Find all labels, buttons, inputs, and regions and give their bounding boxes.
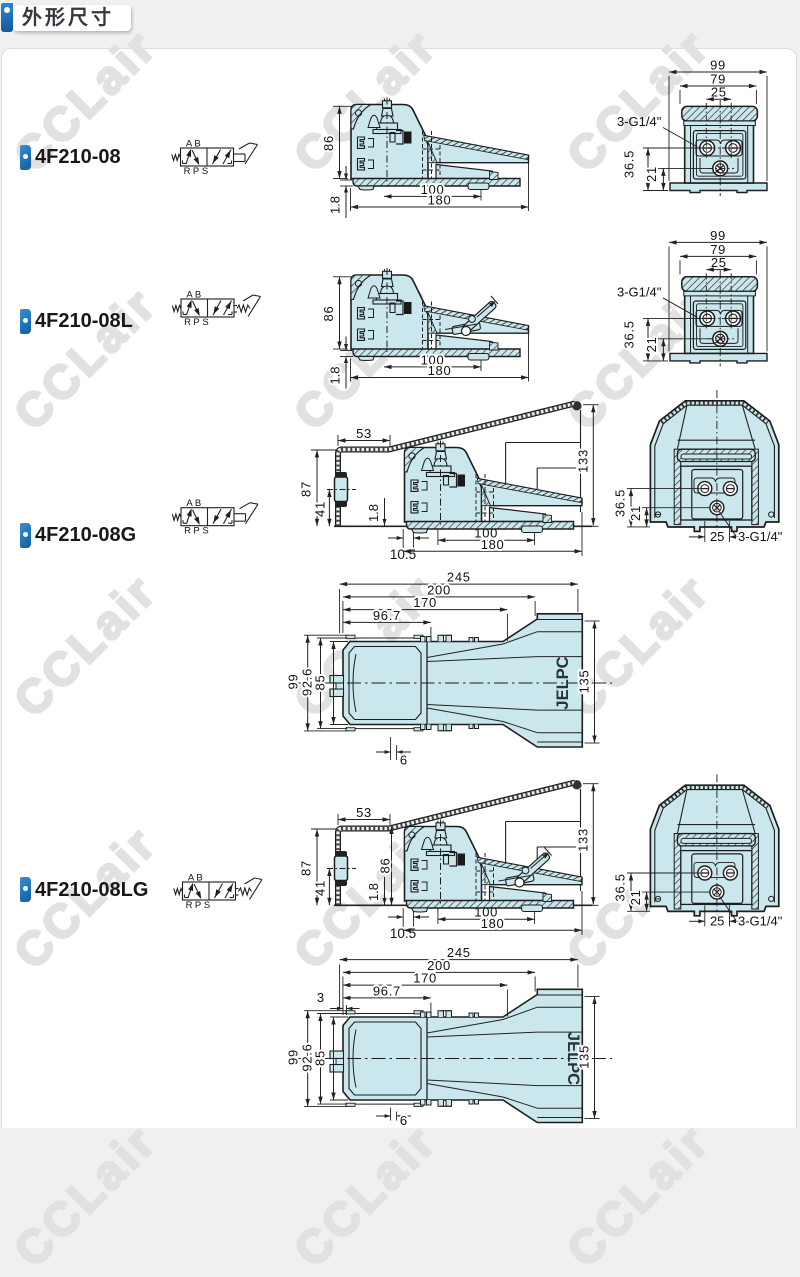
svg-text:A: A (186, 498, 193, 509)
svg-text:P: P (193, 526, 199, 537)
svg-text:R: R (184, 526, 191, 537)
svg-text:10.5: 10.5 (390, 926, 416, 941)
svg-text:S: S (202, 317, 208, 328)
svg-text:6: 6 (400, 753, 407, 768)
svg-text:6: 6 (400, 1113, 407, 1127)
svg-text:A: A (186, 139, 193, 150)
svg-text:180: 180 (481, 916, 505, 931)
svg-text:R: R (184, 317, 191, 328)
svg-text:170: 170 (413, 971, 437, 986)
svg-text:B: B (195, 290, 201, 301)
svg-text:86: 86 (321, 306, 336, 322)
svg-text:135: 135 (577, 1045, 592, 1069)
svg-text:P: P (195, 900, 201, 911)
svg-text:53: 53 (356, 426, 372, 441)
svg-text:85: 85 (313, 1050, 328, 1066)
svg-text:53: 53 (356, 805, 372, 820)
svg-text:96.7: 96.7 (373, 983, 401, 998)
svg-text:R: R (184, 166, 191, 177)
svg-text:1.8: 1.8 (328, 366, 343, 384)
svg-text:180: 180 (481, 537, 505, 552)
svg-text:1.8: 1.8 (366, 504, 381, 522)
svg-text:A: A (188, 873, 195, 884)
svg-text:S: S (202, 526, 208, 537)
svg-text:B: B (196, 873, 202, 884)
svg-text:180: 180 (428, 363, 452, 378)
svg-text:B: B (195, 498, 201, 509)
svg-text:99: 99 (286, 1049, 301, 1065)
svg-text:P: P (193, 317, 199, 328)
svg-text:R: R (186, 900, 193, 911)
svg-text:3: 3 (317, 990, 324, 1005)
svg-text:133: 133 (576, 828, 591, 852)
svg-text:86: 86 (378, 858, 393, 874)
svg-text:87: 87 (299, 481, 314, 497)
svg-text:86: 86 (321, 135, 336, 151)
svg-text:JELPC: JELPC (554, 656, 572, 709)
svg-text:85: 85 (313, 675, 328, 691)
svg-text:S: S (202, 166, 208, 177)
svg-text:133: 133 (576, 449, 591, 473)
svg-text:1.8: 1.8 (366, 883, 381, 901)
svg-text:41: 41 (313, 880, 328, 896)
svg-text:P: P (193, 166, 199, 177)
svg-text:87: 87 (299, 860, 314, 876)
svg-text:96.7: 96.7 (373, 608, 401, 623)
svg-text:135: 135 (577, 670, 592, 694)
svg-text:10.5: 10.5 (390, 547, 416, 562)
svg-text:170: 170 (413, 595, 437, 610)
svg-text:S: S (204, 900, 210, 911)
svg-text:41: 41 (313, 501, 328, 517)
svg-text:180: 180 (428, 193, 452, 208)
svg-text:99: 99 (286, 674, 301, 690)
svg-text:A: A (186, 290, 193, 301)
svg-text:1.8: 1.8 (328, 196, 343, 214)
svg-text:B: B (194, 139, 200, 150)
